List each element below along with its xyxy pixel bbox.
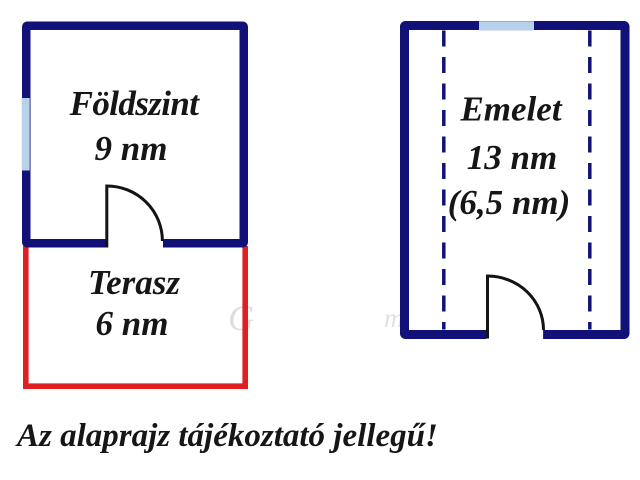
svg-text:Terasz: Terasz: [88, 263, 180, 302]
svg-text:(6,5 nm): (6,5 nm): [448, 183, 571, 222]
svg-text:G: G: [228, 298, 254, 338]
svg-text:9 nm: 9 nm: [95, 129, 168, 168]
svg-text:6 nm: 6 nm: [96, 304, 169, 343]
svg-text:Földszint: Földszint: [69, 84, 201, 123]
svg-text:Emelet: Emelet: [459, 90, 562, 129]
svg-text:Az alaprajz tájékoztató jelleg: Az alaprajz tájékoztató jellegű!: [15, 418, 438, 454]
svg-text:13 nm: 13 nm: [467, 138, 557, 177]
